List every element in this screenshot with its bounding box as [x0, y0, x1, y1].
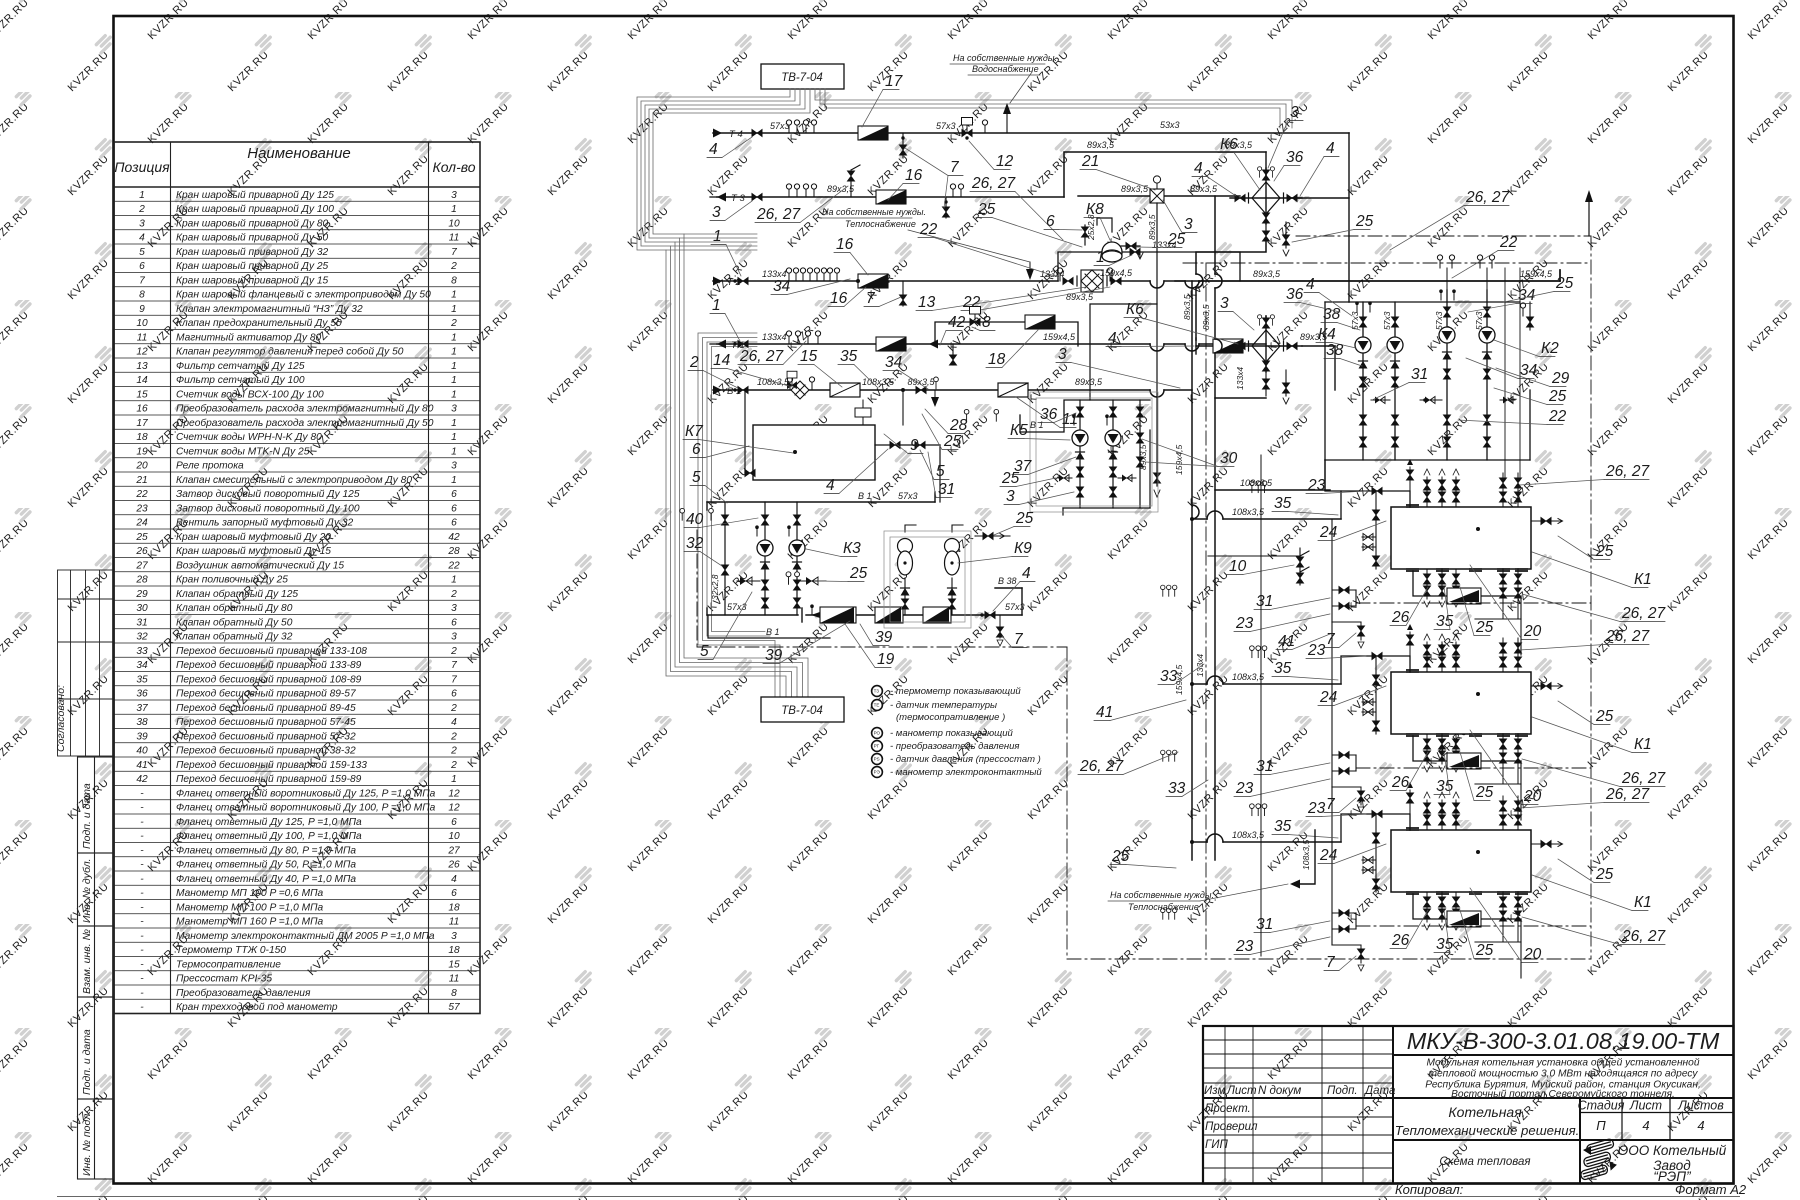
- svg-text:Переход бесшовный приварной 1: Переход бесшовный приварной 133-108: [176, 645, 367, 657]
- svg-text:Фильтр сетчатый Ду 125: Фильтр сетчатый Ду 125: [176, 361, 305, 372]
- svg-text:Переход бесшовный приварной 8: Переход бесшовный приварной 89-57: [176, 688, 356, 700]
- svg-text:25: 25: [1111, 848, 1130, 865]
- svg-text:4: 4: [709, 141, 718, 158]
- svg-text:6: 6: [451, 503, 457, 514]
- svg-text:К1: К1: [1634, 736, 1652, 753]
- svg-text:-: -: [140, 959, 144, 970]
- svg-text:Фильтр сетчатый Ду 100: Фильтр сетчатый Ду 100: [176, 375, 305, 386]
- svg-text:11: 11: [137, 332, 148, 343]
- svg-text:Проект.: Проект.: [1205, 1103, 1251, 1115]
- svg-text:25: 25: [943, 433, 962, 450]
- svg-text:Схема тепловая: Схема тепловая: [1439, 1156, 1530, 1168]
- svg-text:1: 1: [451, 418, 457, 429]
- svg-text:108х3,5: 108х3,5: [1232, 507, 1265, 517]
- svg-text:7: 7: [1326, 796, 1336, 813]
- svg-text:Позиция: Позиция: [114, 159, 170, 175]
- svg-text:21: 21: [1081, 153, 1099, 170]
- svg-text:6: 6: [139, 261, 145, 272]
- svg-text:12: 12: [448, 803, 460, 814]
- svg-text:Т3: Т3: [874, 689, 880, 694]
- svg-text:57х3: 57х3: [1005, 602, 1025, 612]
- svg-text:Затвор дисковый поворотный Ду: Затвор дисковый поворотный Ду 100: [176, 503, 360, 514]
- svg-text:Фланец ответный Ду 50, P =1,0: Фланец ответный Ду 50, P =1,0 МПа: [176, 860, 356, 871]
- svg-text:8: 8: [451, 275, 457, 286]
- svg-text:Переход бесшовный приварной 1: Переход бесшовный приварной 159-89: [176, 773, 362, 785]
- svg-text:К1: К1: [1634, 894, 1652, 911]
- svg-text:35: 35: [1274, 818, 1292, 835]
- svg-text:-: -: [140, 817, 144, 828]
- svg-text:-: -: [140, 1002, 144, 1013]
- svg-text:2: 2: [450, 646, 457, 657]
- svg-text:Кран шаровый приварной Ду 125: Кран шаровый приварной Ду 125: [176, 190, 334, 201]
- svg-text:4: 4: [1326, 140, 1335, 157]
- svg-text:10: 10: [448, 831, 460, 842]
- svg-text:На собственные нужды.: На собственные нужды.: [953, 53, 1057, 63]
- svg-text:К8: К8: [1086, 201, 1104, 218]
- svg-text:29: 29: [135, 589, 148, 600]
- svg-text:Фланец ответный Ду 125, P =1,: Фланец ответный Ду 125, P =1,0 МПа: [176, 817, 362, 828]
- svg-text:38: 38: [1326, 342, 1344, 359]
- svg-text:6: 6: [1046, 213, 1055, 230]
- svg-text:25х2,8: 25х2,8: [1086, 214, 1096, 241]
- svg-text:Переход бесшовный приварной 1: Переход бесшовный приварной 133-89: [176, 659, 362, 671]
- svg-text:Листов: Листов: [1677, 1099, 1724, 1113]
- svg-text:7: 7: [451, 660, 457, 671]
- svg-text:23: 23: [1235, 780, 1254, 797]
- svg-text:Кран шаровый приварной Ду 100: Кран шаровый приварной Ду 100: [176, 204, 334, 215]
- svg-text:РЭ: РЭ: [874, 770, 881, 775]
- svg-text:-: -: [140, 917, 144, 928]
- svg-text:Кран поливочный Ду 25: Кран поливочный Ду 25: [176, 575, 288, 586]
- svg-text:Инв. № дубл.: Инв. № дубл.: [81, 858, 93, 923]
- svg-text:39: 39: [765, 647, 783, 664]
- svg-text:7: 7: [451, 674, 457, 685]
- svg-text:Переход бесшовный приварной 5: Переход бесшовный приварной 57-45: [176, 716, 356, 728]
- svg-text:57: 57: [448, 1002, 460, 1013]
- svg-text:25: 25: [849, 565, 868, 582]
- svg-text:27: 27: [447, 845, 460, 856]
- svg-text:18: 18: [988, 351, 1006, 368]
- svg-text:К1: К1: [1634, 571, 1652, 588]
- svg-text:11: 11: [1062, 411, 1078, 428]
- svg-text:Кран шаровый муфтовый Ду 20: Кран шаровый муфтовый Ду 20: [176, 531, 331, 543]
- svg-text:8: 8: [139, 290, 145, 301]
- svg-text:26: 26: [447, 860, 460, 871]
- svg-text:42: 42: [136, 774, 148, 785]
- svg-text:Преобразователь расхода электр: Преобразователь расхода электромагнитный…: [176, 403, 434, 415]
- svg-text:1: 1: [451, 774, 457, 785]
- svg-text:12: 12: [996, 153, 1014, 170]
- svg-text:35: 35: [136, 674, 148, 685]
- svg-text:4: 4: [1642, 1118, 1649, 1133]
- svg-text:7: 7: [866, 290, 876, 307]
- svg-text:30: 30: [136, 603, 148, 614]
- svg-text:4: 4: [1022, 565, 1031, 582]
- svg-text:Счетчик воды WPH-N-K Ду 80: Счетчик воды WPH-N-K Ду 80: [176, 432, 322, 443]
- svg-text:108х3,5: 108х3,5: [862, 377, 895, 387]
- svg-text:1: 1: [451, 304, 457, 315]
- svg-text:24: 24: [135, 518, 148, 529]
- svg-text:159х4,5: 159х4,5: [1520, 269, 1553, 279]
- svg-text:РТ: РТ: [874, 744, 880, 749]
- svg-text:15: 15: [136, 389, 148, 400]
- svg-text:15: 15: [800, 348, 818, 365]
- svg-text:14: 14: [713, 352, 731, 369]
- svg-text:42: 42: [448, 532, 460, 543]
- svg-text:6: 6: [451, 689, 457, 700]
- svg-text:9: 9: [910, 437, 919, 454]
- svg-text:25: 25: [1167, 231, 1186, 248]
- svg-text:36: 36: [136, 689, 148, 700]
- svg-text:57х3: 57х3: [1382, 311, 1392, 330]
- svg-text:29: 29: [1551, 370, 1570, 387]
- svg-text:Лист: Лист: [1226, 1085, 1257, 1097]
- svg-text:-: -: [140, 788, 144, 799]
- svg-text:32х2,8: 32х2,8: [710, 574, 720, 600]
- svg-text:17: 17: [136, 418, 148, 429]
- svg-text:К6: К6: [1126, 301, 1144, 318]
- svg-text:7: 7: [1014, 631, 1024, 648]
- svg-text:26, 27: 26, 27: [1621, 605, 1666, 622]
- svg-text:11: 11: [449, 917, 460, 928]
- svg-text:4: 4: [1108, 330, 1117, 347]
- svg-text:27: 27: [135, 560, 148, 571]
- svg-text:20: 20: [1523, 946, 1542, 963]
- svg-text:7: 7: [1326, 954, 1336, 971]
- svg-text:5: 5: [700, 643, 709, 660]
- svg-text:(термосопративление ): (термосопративление ): [896, 712, 1005, 723]
- svg-text:6: 6: [451, 617, 457, 628]
- svg-text:1: 1: [451, 347, 457, 358]
- svg-text:159х4,5: 159х4,5: [1100, 268, 1133, 278]
- svg-text:Клапан предохранительный Ду 50: Клапан предохранительный Ду 50: [176, 318, 342, 329]
- svg-text:Тепломеханические решения.: Тепломеханические решения.: [1395, 1123, 1580, 1138]
- svg-text:12: 12: [136, 347, 148, 358]
- svg-text:13: 13: [136, 361, 148, 372]
- svg-text:Магнитный активатор Ду 80: Магнитный активатор Ду 80: [176, 332, 322, 343]
- svg-text:133х4: 133х4: [1235, 367, 1245, 390]
- svg-text:89х3,5: 89х3,5: [1066, 292, 1094, 302]
- svg-text:16: 16: [905, 167, 923, 184]
- svg-text:40: 40: [686, 511, 704, 528]
- svg-text:2: 2: [450, 746, 457, 757]
- svg-text:6: 6: [451, 489, 457, 500]
- svg-text:3: 3: [1184, 216, 1193, 233]
- svg-text:25: 25: [1015, 510, 1034, 527]
- svg-text:1: 1: [451, 290, 457, 301]
- svg-text:36: 36: [1286, 149, 1304, 166]
- svg-text:32: 32: [136, 632, 148, 643]
- svg-text:4: 4: [1697, 1118, 1704, 1133]
- svg-text:N докум: N докум: [1258, 1085, 1301, 1097]
- svg-text:Счетчик воды ВСХ-100 Ду 100: Счетчик воды ВСХ-100 Ду 100: [176, 389, 324, 400]
- svg-text:Инв. № подл.: Инв. № подл.: [81, 1111, 93, 1176]
- svg-text:5: 5: [936, 463, 945, 480]
- svg-text:26, 27: 26, 27: [1605, 628, 1650, 645]
- svg-text:89х3,5: 89х3,5: [1190, 184, 1218, 194]
- svg-text:Т 4: Т 4: [729, 129, 743, 140]
- svg-text:2: 2: [450, 318, 457, 329]
- svg-text:159х4,5: 159х4,5: [1174, 444, 1184, 475]
- svg-text:18: 18: [136, 432, 148, 443]
- svg-text:Фланец ответный воротниковый Д: Фланец ответный воротниковый Ду 100, P =…: [176, 803, 436, 814]
- svg-text:Кол-во: Кол-во: [432, 159, 475, 175]
- svg-text:Водоснабжение: Водоснабжение: [972, 64, 1039, 74]
- svg-text:26, 27: 26, 27: [1621, 770, 1666, 787]
- svg-text:26, 27: 26, 27: [1079, 758, 1124, 775]
- svg-text:ТВ-7-04: ТВ-7-04: [781, 705, 823, 717]
- svg-text:26: 26: [135, 546, 148, 557]
- svg-text:Кран шаровый муфтовый Ду 15: Кран шаровый муфтовый Ду 15: [176, 545, 331, 557]
- svg-text:1: 1: [712, 297, 721, 314]
- svg-text:На собственные нужды.: На собственные нужды.: [822, 207, 926, 217]
- svg-text:РО: РО: [874, 731, 881, 736]
- svg-text:32: 32: [686, 535, 704, 552]
- svg-text:28: 28: [447, 546, 460, 557]
- svg-text:Манометр МП 100 P =1,0 МПа: Манометр МП 100 P =1,0 МПа: [176, 902, 324, 913]
- svg-text:Кран шаровый фланцевый с элект: Кран шаровый фланцевый с электроприводом…: [176, 289, 431, 301]
- svg-text:1: 1: [451, 375, 457, 386]
- svg-text:4: 4: [826, 477, 835, 494]
- svg-text:25: 25: [1595, 866, 1614, 883]
- svg-text:89х3,5: 89х3,5: [1138, 444, 1148, 470]
- svg-text:24: 24: [1319, 524, 1338, 541]
- svg-text:- термометр показывающий: - термометр показывающий: [890, 686, 1021, 697]
- svg-text:3: 3: [139, 218, 145, 229]
- svg-text:Лист: Лист: [1629, 1099, 1662, 1113]
- svg-text:25: 25: [135, 532, 148, 543]
- svg-text:Преобразователь давления: Преобразователь давления: [176, 987, 311, 999]
- svg-text:34: 34: [136, 660, 148, 671]
- svg-text:Клапан обратный Ду 80: Клапан обратный Ду 80: [176, 602, 293, 614]
- svg-text:33: 33: [1160, 668, 1178, 685]
- svg-text:Фланец ответный Ду 80, P =1,0: Фланец ответный Ду 80, P =1,0 МПа: [176, 845, 356, 856]
- svg-text:12: 12: [448, 788, 460, 799]
- svg-text:1: 1: [1096, 249, 1105, 266]
- svg-text:Термосопративление: Термосопративление: [176, 959, 281, 970]
- svg-text:Котельная.: Котельная.: [1448, 1104, 1525, 1120]
- svg-text:89х3,5: 89х3,5: [1182, 294, 1192, 320]
- svg-text:РS: РS: [874, 757, 880, 762]
- svg-text:4: 4: [451, 717, 457, 728]
- svg-text:20: 20: [1523, 788, 1542, 805]
- svg-text:К7: К7: [685, 423, 704, 440]
- svg-text:7: 7: [1326, 631, 1336, 648]
- svg-text:8: 8: [451, 988, 457, 999]
- svg-text:31: 31: [938, 481, 955, 498]
- svg-text:4: 4: [451, 874, 457, 885]
- svg-text:Стадия: Стадия: [1578, 1099, 1625, 1113]
- svg-text:17: 17: [885, 73, 904, 90]
- svg-text:Кран шаровый приварной Ду 25: Кран шаровый приварной Ду 25: [176, 261, 329, 272]
- svg-text:18: 18: [448, 945, 460, 956]
- svg-text:25: 25: [1548, 388, 1567, 405]
- svg-text:18: 18: [448, 902, 460, 913]
- svg-text:К2: К2: [1541, 340, 1559, 357]
- svg-text:ГИП: ГИП: [1205, 1139, 1228, 1151]
- svg-text:28: 28: [949, 417, 968, 434]
- svg-text:36: 36: [1286, 286, 1304, 303]
- svg-text:- датчик температуры: - датчик температуры: [890, 700, 997, 711]
- svg-text:22: 22: [447, 560, 460, 571]
- svg-text:Фланец ответный Ду 100, P =1,: Фланец ответный Ду 100, P =1,0 МПа: [176, 831, 362, 842]
- svg-text:23: 23: [135, 503, 148, 514]
- svg-text:Теплоснабжение: Теплоснабжение: [845, 219, 916, 229]
- svg-text:89х3,5: 89х3,5: [1087, 140, 1115, 150]
- svg-text:-: -: [140, 860, 144, 871]
- svg-text:Кран шаровый приварной Ду 15: Кран шаровый приварной Ду 15: [176, 275, 329, 286]
- svg-text:30: 30: [1220, 450, 1238, 467]
- svg-text:26, 27: 26, 27: [971, 175, 1016, 192]
- svg-text:Клапан обратный Ду 50: Клапан обратный Ду 50: [176, 616, 293, 628]
- svg-text:39: 39: [136, 731, 148, 742]
- svg-text:19: 19: [877, 651, 895, 668]
- svg-text:Кран трехходовой под манометр: Кран трехходовой под манометр: [176, 1002, 338, 1013]
- svg-text:108х3,5: 108х3,5: [1301, 839, 1311, 870]
- svg-text:-: -: [140, 988, 144, 999]
- svg-text:К9: К9: [1014, 540, 1032, 557]
- svg-text:10: 10: [1229, 558, 1247, 575]
- svg-text:Счетчик воды MTK-N Ду 25: Счетчик воды MTK-N Ду 25: [176, 446, 310, 457]
- svg-text:25: 25: [1001, 470, 1020, 487]
- svg-text:Изм: Изм: [1204, 1085, 1225, 1097]
- svg-text:133х4: 133х4: [1195, 654, 1205, 677]
- svg-text:26, 27: 26, 27: [1465, 189, 1510, 206]
- svg-text:19: 19: [136, 446, 148, 457]
- svg-text:25: 25: [977, 201, 996, 218]
- svg-text:35: 35: [1436, 613, 1454, 630]
- svg-text:26, 27: 26, 27: [739, 348, 784, 365]
- svg-text:16: 16: [836, 236, 854, 253]
- svg-text:2: 2: [450, 703, 457, 714]
- svg-text:36: 36: [1040, 406, 1058, 423]
- svg-text:Подп. и дата: Подп. и дата: [81, 783, 93, 849]
- svg-text:Воздушник автоматический Ду 15: Воздушник автоматический Ду 15: [176, 560, 344, 571]
- svg-text:7: 7: [950, 159, 960, 176]
- svg-text:2: 2: [450, 731, 457, 742]
- svg-text:39: 39: [875, 629, 893, 646]
- svg-text:34: 34: [885, 354, 903, 371]
- svg-text:14: 14: [136, 375, 148, 386]
- svg-text:Манометр МП 160 P =1,0 МПа: Манометр МП 160 P =1,0 МПа: [176, 917, 324, 928]
- svg-text:3: 3: [1058, 346, 1067, 363]
- svg-text:1: 1: [451, 389, 457, 400]
- svg-text:Фланец ответный Ду 40, P =1,0: Фланец ответный Ду 40, P =1,0 МПа: [176, 874, 356, 885]
- svg-text:Согласовано:: Согласовано:: [55, 685, 67, 752]
- svg-text:6: 6: [451, 817, 457, 828]
- svg-text:41: 41: [136, 760, 147, 771]
- svg-text:1: 1: [451, 361, 457, 372]
- svg-text:Переход бесшовный приварной 8: Переход бесшовный приварной 89-45: [176, 702, 356, 714]
- svg-text:133х4: 133х4: [762, 332, 787, 342]
- svg-text:Преобразователь расхода электр: Преобразователь расхода электромагнитный…: [176, 417, 434, 429]
- svg-text:В 1: В 1: [858, 491, 872, 501]
- svg-text:3: 3: [1290, 104, 1299, 121]
- svg-text:Переход бесшовный приварной 5: Переход бесшовный приварной 57-32: [176, 730, 356, 742]
- svg-text:В 38: В 38: [998, 576, 1017, 586]
- svg-text:31: 31: [136, 617, 147, 628]
- svg-text:К3: К3: [843, 540, 861, 557]
- svg-text:Прессостат KPI-35: Прессостат KPI-35: [176, 974, 272, 985]
- svg-text:Кран шаровый приварной Ду 32: Кран шаровый приварной Ду 32: [176, 247, 329, 258]
- svg-text:89х3,5: 89х3,5: [1121, 184, 1149, 194]
- svg-text:1: 1: [713, 228, 722, 245]
- svg-text:5: 5: [692, 469, 701, 486]
- svg-text:Клапан регулятор давления пере: Клапан регулятор давления перед собой Ду…: [176, 346, 404, 358]
- svg-text:4: 4: [1194, 160, 1203, 177]
- svg-text:К6: К6: [1220, 136, 1238, 153]
- svg-text:25: 25: [1475, 619, 1494, 636]
- svg-text:-: -: [140, 974, 144, 985]
- svg-text:4: 4: [139, 233, 145, 244]
- svg-text:Теплоснабжение: Теплоснабжение: [1128, 902, 1199, 912]
- svg-text:1: 1: [451, 204, 457, 215]
- svg-text:89х3,5: 89х3,5: [1075, 377, 1103, 387]
- svg-text:2: 2: [450, 589, 457, 600]
- svg-text:-: -: [140, 945, 144, 956]
- svg-text:23: 23: [1235, 615, 1254, 632]
- svg-text:10: 10: [136, 318, 148, 329]
- svg-text:16: 16: [830, 290, 848, 307]
- svg-text:16: 16: [136, 404, 148, 415]
- svg-text:25: 25: [1475, 784, 1494, 801]
- svg-text:2: 2: [689, 354, 699, 371]
- svg-text:ООО Котельный: ООО Котельный: [1618, 1143, 1727, 1158]
- svg-text:57х3: 57х3: [898, 491, 918, 501]
- svg-text:89х3,5: 89х3,5: [1147, 214, 1157, 240]
- svg-text:-: -: [140, 874, 144, 885]
- svg-text:ТВ-7-04: ТВ-7-04: [781, 72, 823, 84]
- svg-text:Дата: Дата: [1363, 1085, 1395, 1097]
- svg-text:9: 9: [139, 304, 145, 315]
- svg-text:Вентиль запорный муфтовый Ду: Вентиль запорный муфтовый Ду 32: [176, 517, 354, 529]
- svg-text:40: 40: [136, 746, 148, 757]
- svg-text:- манометр показывающий: - манометр показывающий: [890, 728, 1014, 739]
- svg-text:-: -: [140, 845, 144, 856]
- svg-text:-: -: [140, 888, 144, 899]
- svg-text:31: 31: [1256, 593, 1273, 610]
- svg-text:МКУ-В-300-3.01.08.19.00-ТМ: МКУ-В-300-3.01.08.19.00-ТМ: [1407, 1028, 1720, 1054]
- svg-text:11: 11: [449, 233, 460, 244]
- svg-text:26, 27: 26, 27: [756, 206, 801, 223]
- svg-text:Затвор дисковый поворотный Ду: Затвор дисковый поворотный Ду 125: [176, 489, 360, 500]
- svg-text:15: 15: [448, 959, 460, 970]
- svg-text:35: 35: [1274, 495, 1292, 512]
- svg-text:Проверил: Проверил: [1205, 1121, 1258, 1133]
- svg-text:35: 35: [1436, 778, 1454, 795]
- svg-text:7: 7: [451, 247, 457, 258]
- svg-text:159х4,5: 159х4,5: [1043, 332, 1076, 342]
- svg-text:Клапан электромагнитный “НЗ”: Клапан электромагнитный “НЗ” Ду 32: [176, 304, 363, 315]
- svg-text:3: 3: [451, 461, 457, 472]
- svg-text:23: 23: [1307, 800, 1326, 817]
- svg-text:57х3: 57х3: [1474, 311, 1484, 330]
- svg-text:25: 25: [1595, 543, 1614, 560]
- svg-text:1: 1: [451, 475, 457, 486]
- svg-text:Термометр ТТЖ 0-150: Термометр ТТЖ 0-150: [176, 945, 286, 956]
- svg-text:Подп. и дата: Подп. и дата: [81, 1029, 93, 1095]
- svg-text:26, 27: 26, 27: [1605, 786, 1650, 803]
- svg-text:Клапан смесительный с электроп: Клапан смесительный с электроприводом Ду…: [176, 475, 412, 486]
- svg-text:- преобразователь давления: - преобразователь давления: [890, 741, 1020, 752]
- svg-text:2: 2: [450, 261, 457, 272]
- svg-text:23: 23: [1307, 477, 1326, 494]
- svg-text:Клапан обратный Ду 32: Клапан обратный Ду 32: [176, 631, 293, 643]
- svg-text:5: 5: [139, 247, 145, 258]
- svg-text:25: 25: [1555, 275, 1574, 292]
- svg-text:11: 11: [449, 974, 460, 985]
- svg-text:Клапан обратный Ду 125: Клапан обратный Ду 125: [176, 588, 298, 600]
